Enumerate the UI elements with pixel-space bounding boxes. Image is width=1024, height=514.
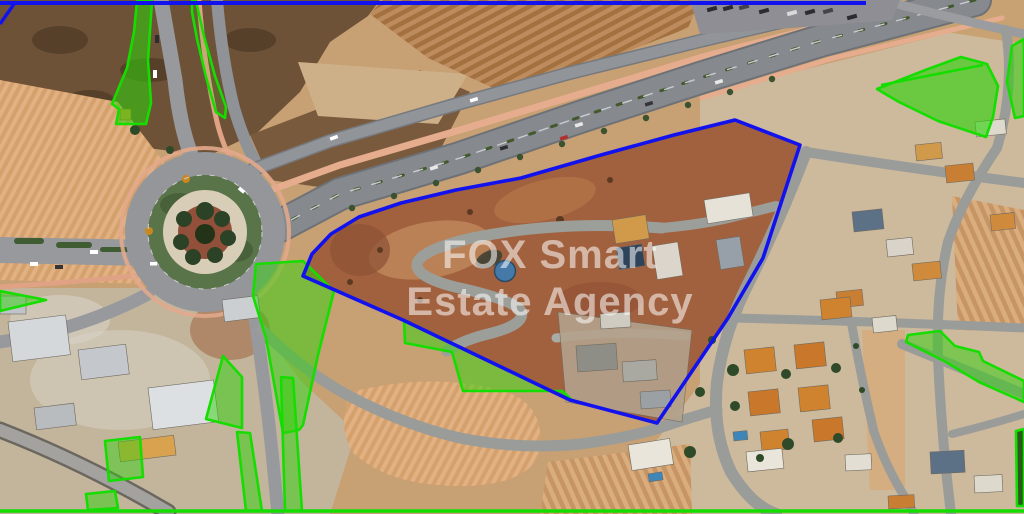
green-zones xyxy=(0,1,1024,511)
boundary-lines xyxy=(0,3,1024,511)
green-zone-bottomright-strip xyxy=(906,331,1024,402)
green-zone-left-edge-sliver xyxy=(0,291,46,311)
property-location-dot xyxy=(495,261,516,282)
location-marker xyxy=(495,261,516,282)
green-zone-topright-fan xyxy=(877,57,998,137)
property-boundary xyxy=(303,120,800,423)
green-zone-south-strip-left xyxy=(237,432,262,511)
property-boundary-polygon xyxy=(303,120,800,423)
property-map: FOX Smart Estate Agency xyxy=(0,0,1024,514)
green-zone-small-square xyxy=(105,437,143,481)
green-zone-topleft-wedge xyxy=(112,1,152,124)
green-zone-right-edge-bottom xyxy=(1016,429,1024,506)
map-overlays xyxy=(0,0,1024,514)
green-zone-south-triangle xyxy=(206,356,242,428)
green-zone-bottomleft-small xyxy=(86,491,118,510)
green-zone-right-edge-sliver xyxy=(1007,39,1024,118)
green-zone-topleft-crescent xyxy=(192,1,226,118)
top-left-boundary-segment xyxy=(0,4,14,24)
